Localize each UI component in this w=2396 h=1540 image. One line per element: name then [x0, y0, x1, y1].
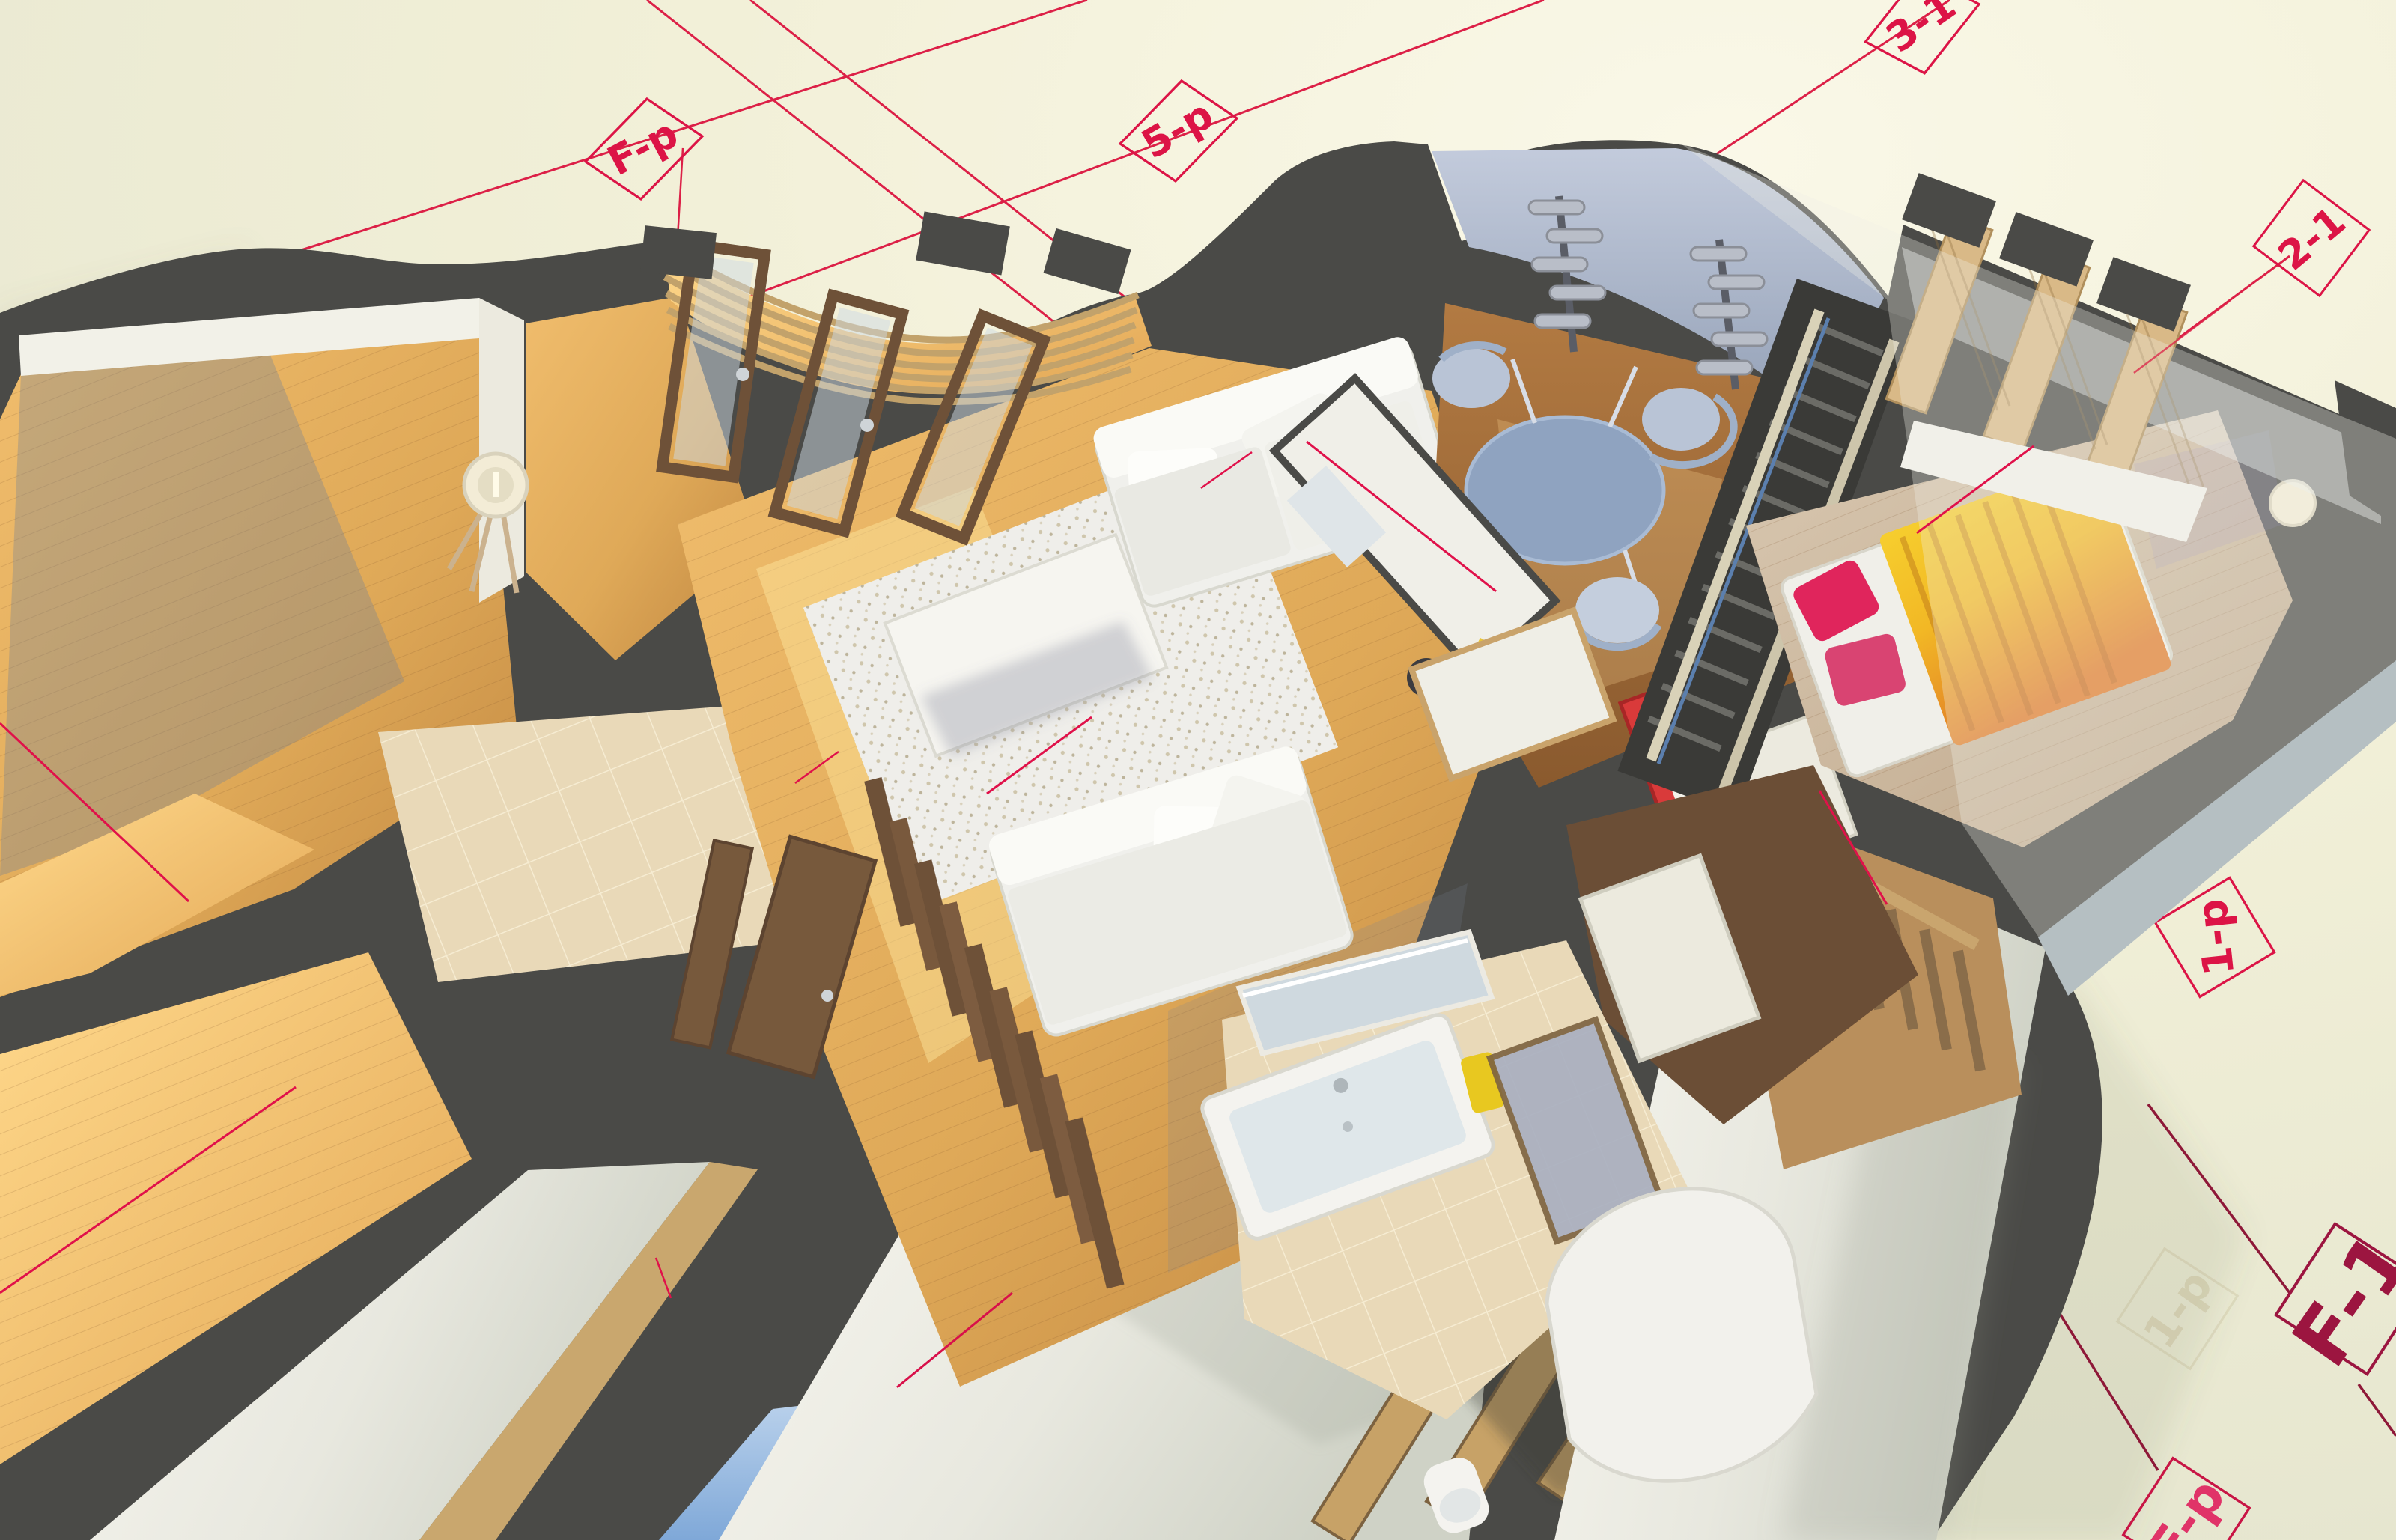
lamp-bulb — [493, 472, 499, 497]
door-cap — [640, 225, 717, 279]
wine-bottle — [1532, 258, 1587, 271]
wine-bottle — [1691, 247, 1746, 261]
door-handle — [736, 368, 749, 381]
left-room-wall-right — [479, 298, 524, 603]
render-stage: F-p5-p3-12-11-p1-pF-1F-p — [0, 0, 2396, 1540]
axis-label-text: 1-p — [2188, 897, 2244, 979]
dining-chair — [1575, 577, 1659, 643]
wine-bottle — [1712, 332, 1767, 346]
building-cutaway — [0, 140, 2396, 1540]
door-handle — [821, 990, 833, 1002]
dining-chair — [1642, 388, 1720, 451]
architectural-cutaway-render: F-p5-p3-12-11-p1-pF-1F-p — [0, 0, 2396, 1540]
wine-bottle — [1709, 276, 1764, 289]
wine-bottle — [1697, 361, 1752, 374]
wine-bottle — [1529, 201, 1584, 214]
wine-bottle — [1547, 229, 1602, 243]
wine-bottle — [1550, 286, 1605, 299]
curved-shower-tub — [1547, 1189, 1816, 1481]
door-handle — [860, 419, 874, 432]
wine-bottle — [1694, 304, 1749, 317]
wine-bottle — [1535, 314, 1590, 328]
